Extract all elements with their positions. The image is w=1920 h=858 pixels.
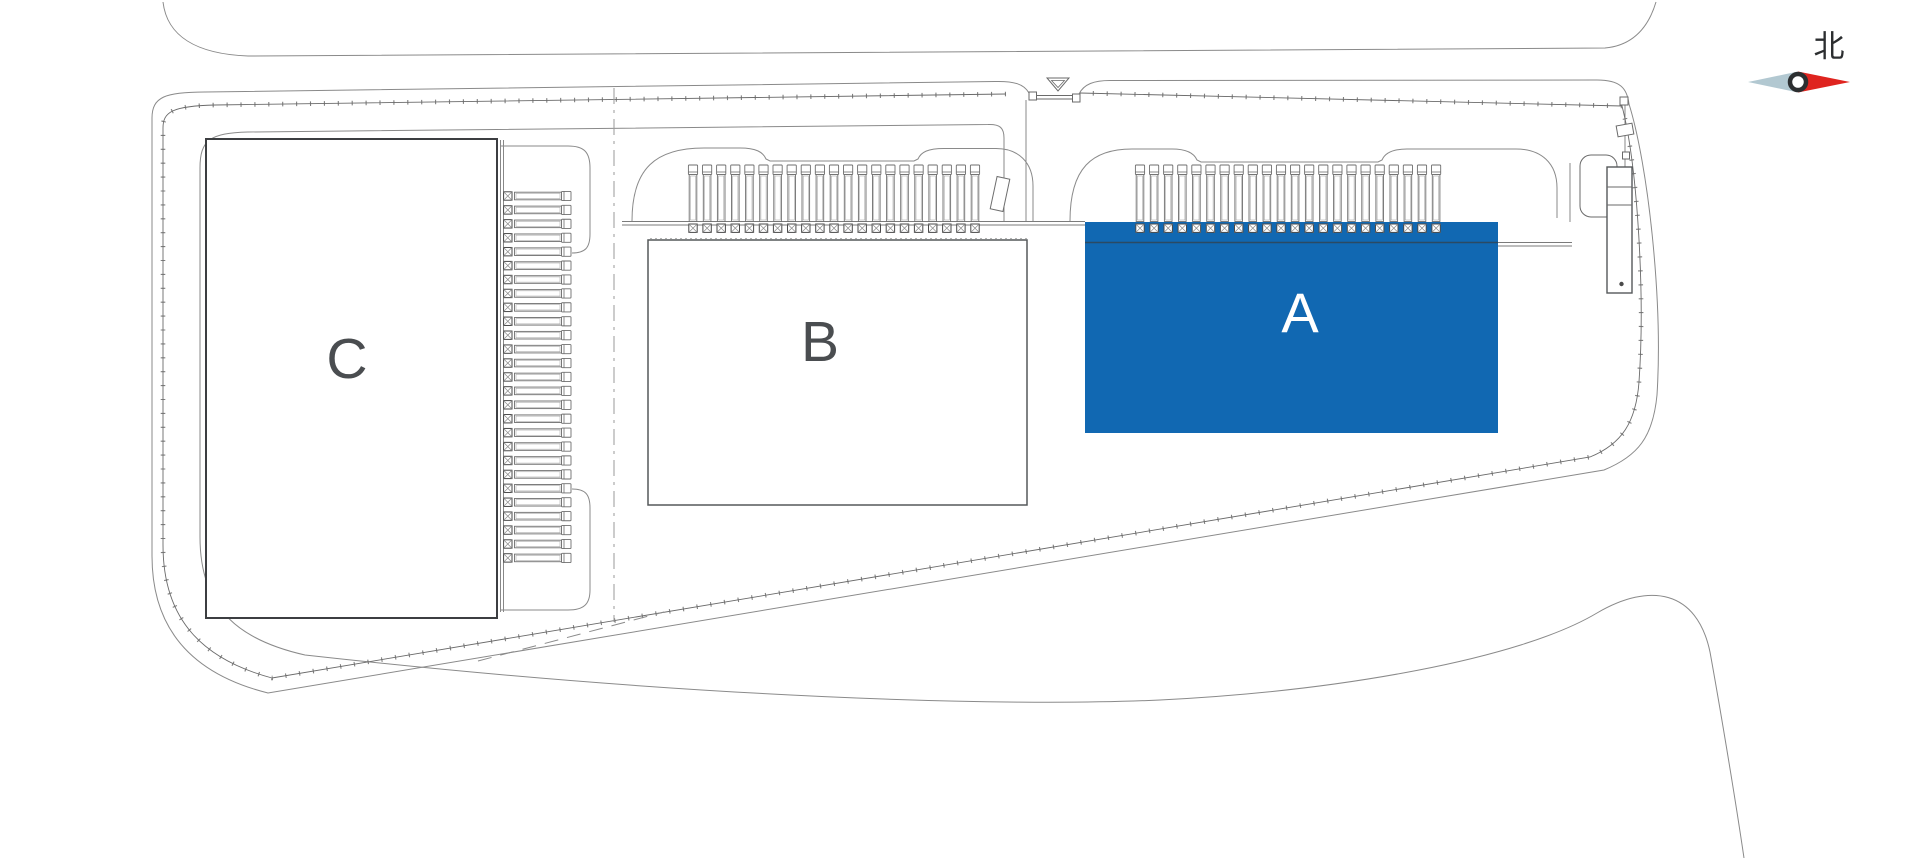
truck-dock-icon — [504, 275, 571, 284]
truck-dock-icon — [504, 372, 571, 381]
truck-dock-icon — [759, 165, 768, 232]
east-gate-guard — [1580, 97, 1634, 293]
truck-dock-icon — [829, 165, 838, 232]
compass-icon: 北 — [1748, 29, 1850, 93]
entrance-triangle-icon — [1047, 78, 1069, 91]
truck-dock-icon — [928, 165, 937, 232]
building-c[interactable] — [206, 139, 497, 618]
truck-dock-icon — [815, 165, 824, 232]
dashed-boundary — [478, 612, 664, 661]
truck-dock-icon — [773, 165, 782, 232]
truck-dock-icon — [504, 386, 571, 395]
truck-dock-icon — [886, 165, 895, 232]
truck-dock-icon — [688, 165, 697, 232]
truck-dock-icon — [970, 165, 979, 232]
east-gate-bar — [1616, 123, 1634, 137]
truck-dock-icon — [504, 553, 571, 562]
truck-dock-icon — [504, 539, 571, 548]
truck-dock-icon — [504, 428, 571, 437]
truck-dock-icon — [731, 165, 740, 232]
truck-dock-icon — [504, 345, 571, 354]
truck-dock-icon — [872, 165, 881, 232]
gate-post-left — [1029, 92, 1037, 100]
truck-dock-icon — [504, 470, 571, 479]
truck-dock-icon — [504, 414, 571, 423]
truck-dock-icon — [504, 331, 571, 340]
truck-dock-icon — [504, 303, 571, 312]
east-gate-post — [1620, 97, 1628, 105]
truck-dock-icon — [504, 233, 571, 242]
truck-dock-icon — [504, 484, 571, 493]
outer-boundary-line — [163, 2, 1656, 56]
truck-dock-icon — [504, 317, 571, 326]
truck-dock-icon — [504, 456, 571, 465]
truck-dock-icon — [504, 191, 571, 200]
truck-dock-icon — [504, 498, 571, 507]
truck-dock-icon — [504, 219, 571, 228]
site-plan: A B C 北 — [0, 0, 1920, 858]
building-b[interactable] — [648, 240, 1027, 505]
main-entrance-gate — [1029, 78, 1080, 102]
truck-dock-icon — [504, 289, 571, 298]
truck-dock-icon — [504, 525, 571, 534]
truck-dock-icon — [844, 165, 853, 232]
guard-house — [1607, 167, 1632, 293]
truck-dock-icon — [504, 400, 571, 409]
truck-dock-icon — [745, 165, 754, 232]
truck-dock-icon — [504, 261, 571, 270]
guard-house-dot — [1619, 282, 1623, 286]
truck-dock-icon — [504, 442, 571, 451]
gate-post-right — [1073, 94, 1081, 102]
truck-dock-icon — [942, 165, 951, 232]
site-plan-canvas: A B C 北 — [0, 0, 1920, 858]
north-label: 北 — [1814, 29, 1845, 64]
trailer-icon — [990, 177, 1010, 212]
truck-dock-icon — [787, 165, 796, 232]
truck-dock-icon — [717, 165, 726, 232]
truck-dock-icon — [801, 165, 810, 232]
truck-dock-icon — [858, 165, 867, 232]
truck-dock-icon — [504, 358, 571, 367]
building-a[interactable] — [1085, 222, 1498, 433]
truck-dock-icon — [900, 165, 909, 232]
truck-dock-icon — [914, 165, 923, 232]
truck-dock-icon — [504, 247, 571, 256]
entrance-triangle-inner — [1052, 81, 1065, 88]
truck-dock-icon — [504, 205, 571, 214]
truck-dock-icon — [703, 165, 712, 232]
truck-dock-icon — [956, 165, 965, 232]
truck-dock-icon — [504, 512, 571, 521]
compass-ring — [1790, 74, 1806, 90]
